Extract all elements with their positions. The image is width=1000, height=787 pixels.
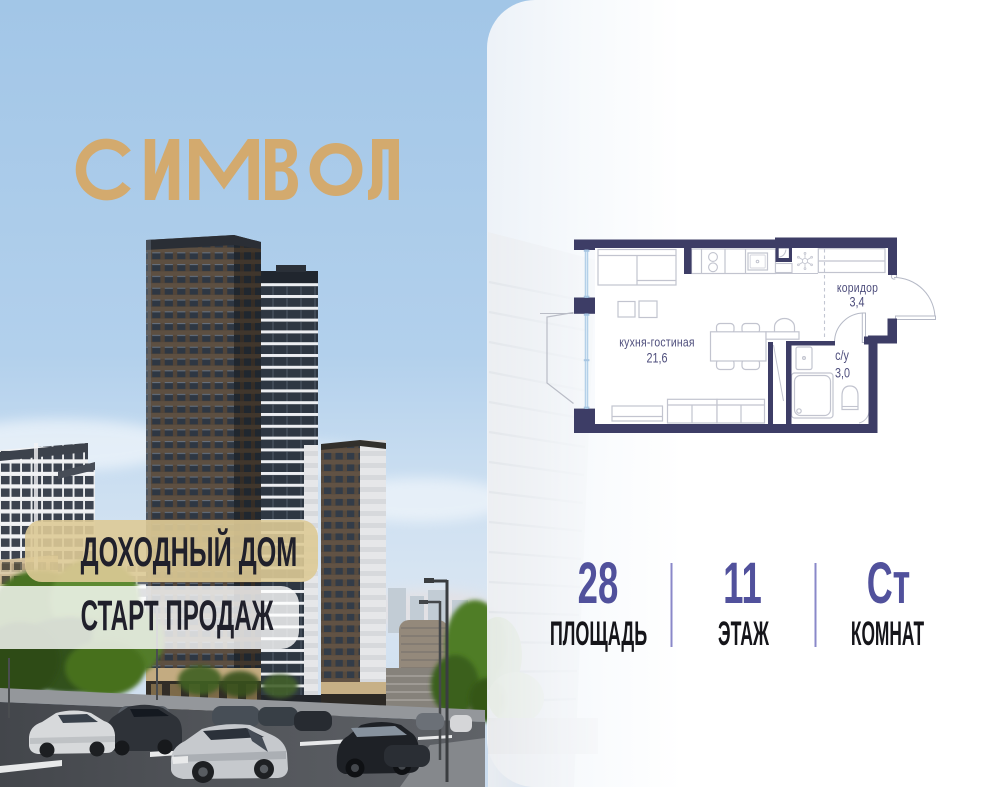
- svg-text:28: 28: [578, 552, 619, 617]
- svg-text:коридор: коридор: [837, 281, 879, 295]
- svg-text:СТАРТ ПРОДАЖ: СТАРТ ПРОДАЖ: [81, 592, 274, 640]
- svg-text:11: 11: [723, 552, 762, 617]
- svg-text:ПЛОЩАДЬ: ПЛОЩАДЬ: [550, 614, 647, 653]
- svg-text:ЭТАЖ: ЭТАЖ: [718, 614, 769, 653]
- svg-text:21,6: 21,6: [646, 350, 667, 365]
- svg-text:Ст: Ст: [867, 551, 911, 616]
- svg-text:ДОХОДНЫЙ ДОМ: ДОХОДНЫЙ ДОМ: [81, 527, 298, 575]
- svg-text:3,4: 3,4: [849, 294, 864, 309]
- svg-text:КОМНАТ: КОМНАТ: [851, 615, 925, 653]
- svg-text:кухня-гостиная: кухня-гостиная: [619, 335, 695, 349]
- svg-text:с/у: с/у: [835, 348, 850, 363]
- svg-text:3,0: 3,0: [835, 365, 850, 380]
